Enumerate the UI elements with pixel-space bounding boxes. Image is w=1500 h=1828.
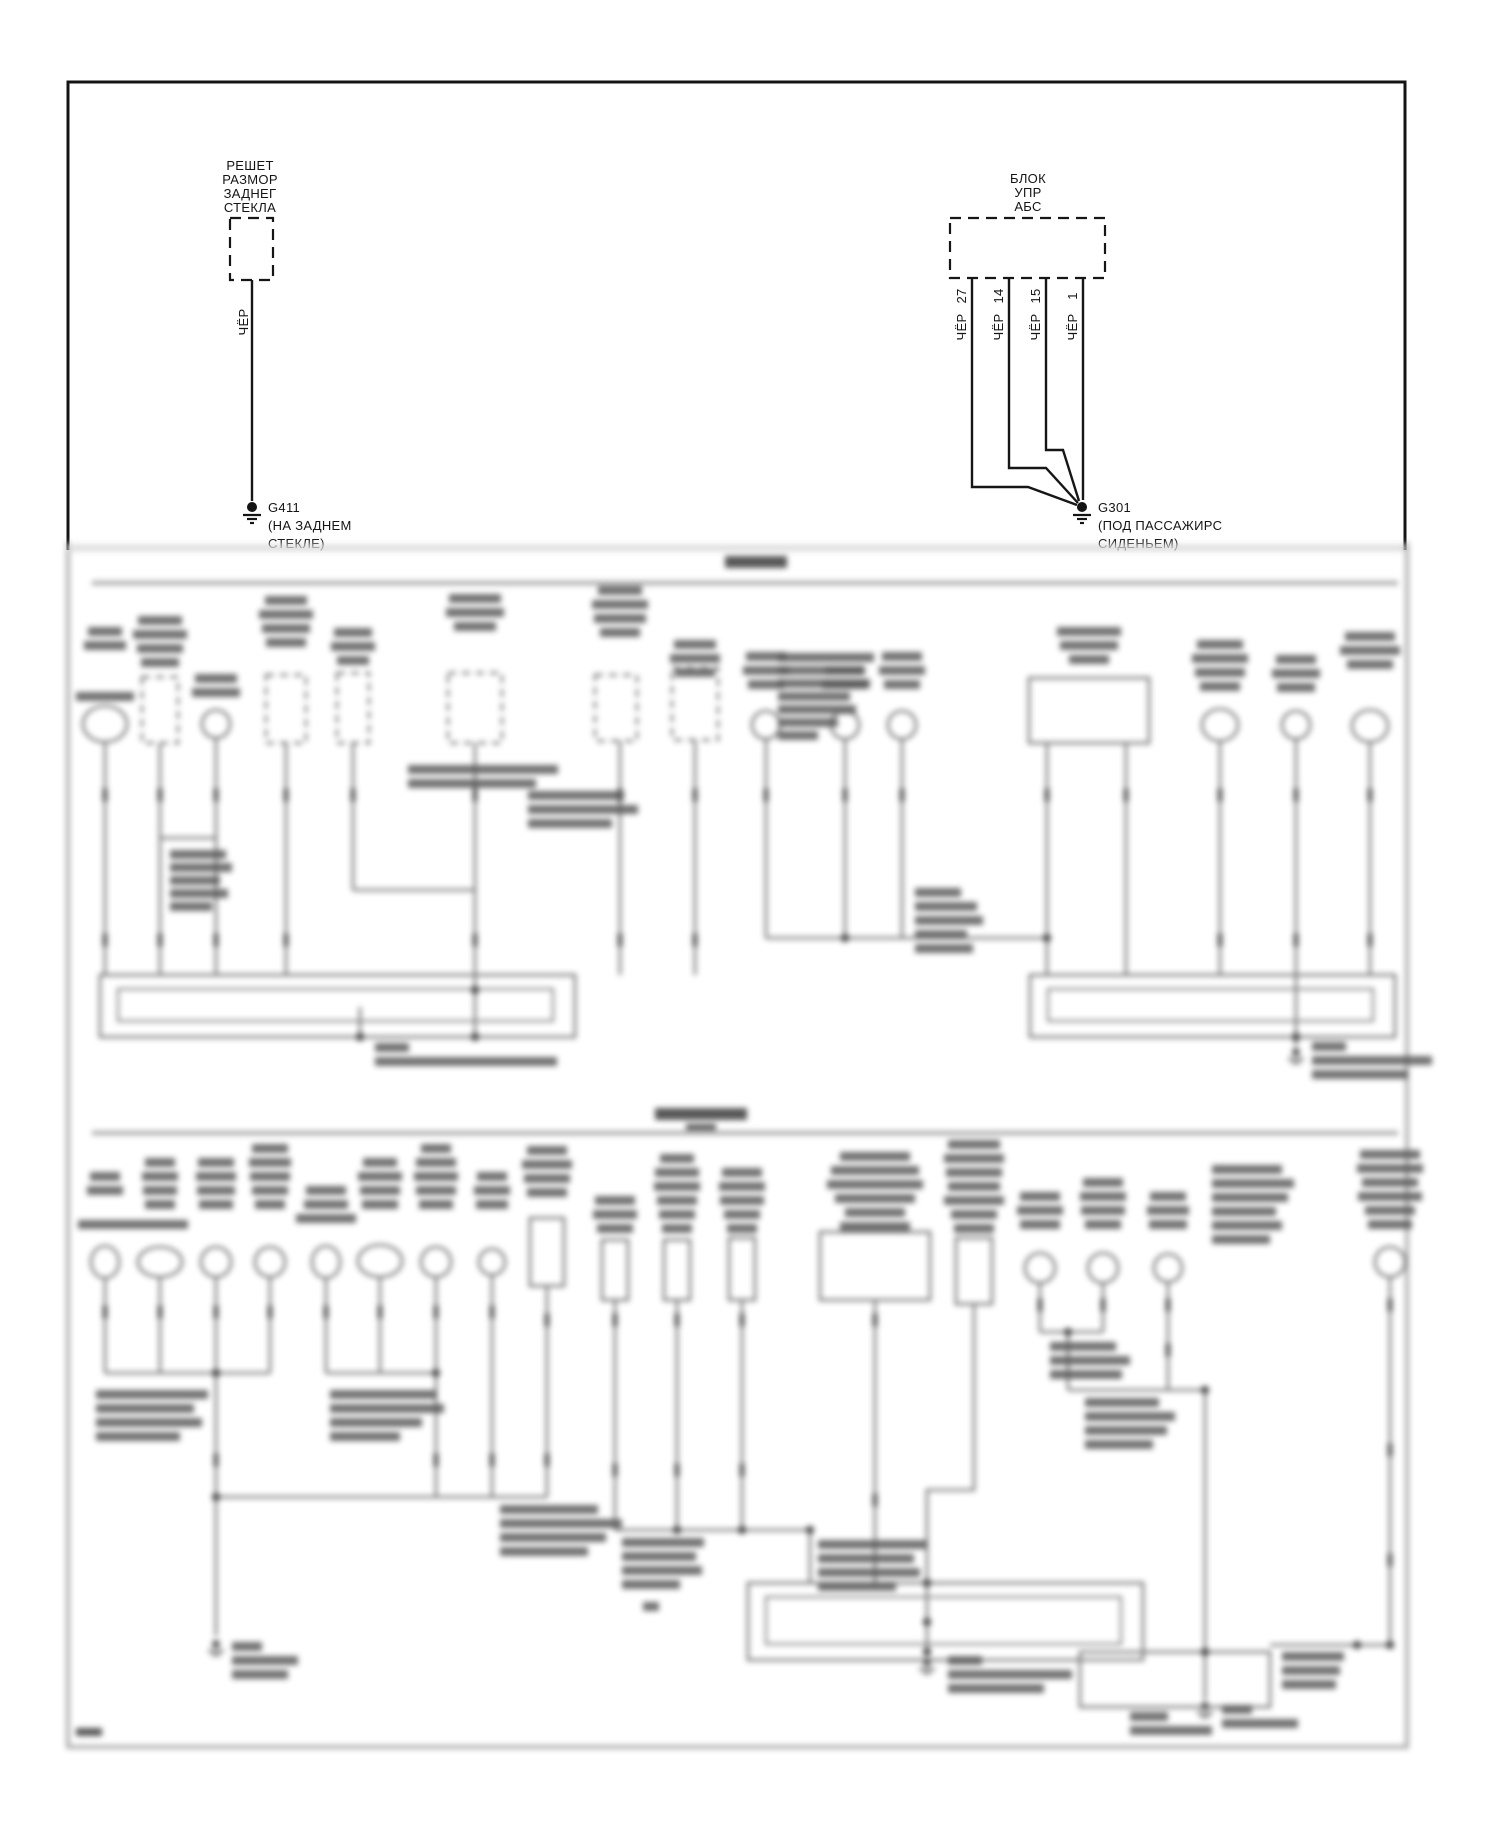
blurred-inline-connector (1166, 1299, 1171, 1312)
blurred-label-row (330, 1390, 436, 1399)
blurred-component-label (1081, 1206, 1125, 1215)
blurred-label-row (818, 1554, 914, 1563)
blurred-component-label (331, 642, 375, 651)
blurred-component-label (363, 1158, 397, 1167)
blurred-connector-box (337, 673, 369, 743)
blurred-component-label (1347, 660, 1393, 669)
blurred-label-row (96, 1418, 202, 1427)
blurred-junction-dot (471, 986, 479, 994)
blurred-component-circle (421, 1247, 451, 1277)
blurred-label-row (232, 1656, 298, 1665)
blurred-inline-connector (103, 789, 108, 802)
blurred-label-row (818, 1540, 926, 1549)
blurred-label-row (1130, 1726, 1212, 1735)
blurred-inline-connector (618, 934, 623, 947)
blurred-component-label (1020, 1192, 1060, 1201)
blurred-ground-bus (1030, 975, 1395, 1037)
blurred-ground-bus (748, 1583, 1143, 1660)
blurred-label-row (622, 1566, 702, 1575)
blurred-component-label (951, 1210, 997, 1219)
blurred-inline-connector (1218, 934, 1223, 947)
blurred-label-row (1130, 1712, 1168, 1721)
blurred-inline-connector (613, 1464, 618, 1477)
blurred-label-row (1222, 1719, 1298, 1728)
blurred-inline-connector (351, 789, 356, 802)
blurred-component-circle (201, 1247, 231, 1277)
blurred-component-label (266, 638, 306, 647)
blurred-inline-connector (1388, 1554, 1393, 1567)
blurred-component-label (419, 1200, 453, 1209)
blurred-inline-connector (693, 934, 698, 947)
blurred-component-label (196, 1172, 236, 1181)
blurred-inline-connector (1101, 1299, 1106, 1312)
blurred-component-box (664, 1240, 690, 1300)
blurred-inline-connector (843, 789, 848, 802)
blurred-label-row (778, 653, 874, 662)
blurred-component-box (956, 1238, 992, 1304)
blurred-component-label (255, 1200, 285, 1209)
blurred-ground-symbol (212, 1640, 220, 1648)
blurred-component-label (1060, 641, 1118, 650)
blurred-component-label (334, 628, 372, 637)
blurred-component-label (1276, 655, 1316, 664)
blurred-section-title (725, 556, 787, 568)
blurred-component-label (195, 674, 237, 683)
blurred-component-label (822, 680, 868, 689)
blurred-component-label (446, 608, 504, 617)
blurred-component-label (944, 1196, 1004, 1205)
blurred-junction-dot (1043, 934, 1051, 942)
blurred-component-label (421, 1144, 451, 1153)
blurred-component-label (1080, 1192, 1126, 1201)
blurred-inline-connector (1294, 789, 1299, 802)
blurred-component-oval (1352, 710, 1388, 742)
blurred-component-label (1147, 1206, 1189, 1215)
blurred-component-label (670, 654, 720, 663)
blurred-component-label (592, 600, 648, 609)
blurred-component-label (748, 680, 784, 689)
blurred-component-label (954, 1224, 994, 1233)
blurred-component-label (87, 1186, 123, 1195)
wiring-diagram-page: РЕШЕТ РАЗМОР ЗАДНЕГ СТЕКЛА ЧЁР G411 (НА … (0, 0, 1500, 1828)
blurred-label-row (232, 1642, 262, 1651)
blurred-inline-connector (675, 1314, 680, 1327)
blurred-label-row (915, 888, 961, 897)
blurred-label-row (375, 1043, 409, 1052)
blurred-component-label (722, 1168, 762, 1177)
blurred-label-row (1212, 1235, 1270, 1244)
blurred-component-label (840, 1222, 910, 1231)
blurred-label-row (1050, 1370, 1122, 1379)
blurred-component-label (78, 1220, 188, 1229)
blurred-label-row (1212, 1207, 1276, 1216)
blurred-component-oval (312, 1246, 340, 1278)
blurred-inline-connector (1388, 1444, 1393, 1457)
blurred-label-row (915, 930, 967, 939)
blurred-component-circle (1025, 1253, 1055, 1283)
blurred-inline-connector (214, 934, 219, 947)
blurred-inline-connector (378, 1306, 383, 1319)
blurred-component-label (835, 1194, 915, 1203)
blurred-label-row (1312, 1056, 1432, 1065)
blurred-label-row (1212, 1179, 1294, 1188)
blurred-component-oval (91, 1246, 119, 1278)
blurred-label-row (1282, 1680, 1336, 1689)
blurred-label-row (1312, 1070, 1408, 1079)
blurred-label-row (1222, 1705, 1252, 1714)
blurred-ground-symbol (1201, 1702, 1209, 1710)
blurred-inline-connector (434, 1306, 439, 1319)
blurred-component-label (524, 1174, 570, 1183)
blurred-junction-dot (1386, 1641, 1394, 1649)
blurred-component-label (600, 628, 640, 637)
blurred-component-label (454, 622, 496, 631)
blurred-ground-bus (100, 975, 575, 1037)
blurred-component-label (1360, 1150, 1420, 1159)
blurred-junction-dot (923, 1618, 931, 1626)
blurred-inline-connector (1294, 934, 1299, 947)
blurred-label-row (778, 718, 838, 727)
blurred-component-label (198, 1158, 234, 1167)
blurred-label-row (778, 731, 818, 740)
blurred-label-row (622, 1538, 704, 1547)
blurred-component-label (597, 1224, 633, 1233)
blurred-component-label (879, 666, 925, 675)
blurred-component-label (259, 610, 313, 619)
blurred-inline-connector (158, 934, 163, 947)
blurred-component-label (474, 1186, 510, 1195)
blurred-component-label (675, 668, 715, 677)
blurred-component-label (416, 1186, 456, 1195)
blurred-label-row (915, 902, 977, 911)
blurred-inline-connector (545, 1314, 550, 1327)
blurred-component-label (594, 614, 646, 623)
blurred-component-label (252, 1186, 288, 1195)
blurred-component-label (306, 1186, 346, 1195)
blurred-label-row (330, 1432, 400, 1441)
blurred-component-circle (752, 711, 780, 739)
blurred-label-row (1085, 1440, 1153, 1449)
blurred-label-row (170, 876, 220, 885)
blurred-inline-connector (490, 1306, 495, 1319)
blurred-junction-dot (471, 1033, 479, 1041)
blurred-junction-dot (212, 1369, 220, 1377)
blurred-section-title (76, 1728, 102, 1736)
blurred-component-label (477, 1172, 507, 1181)
blurred-component-label (882, 652, 922, 661)
blurred-component-label (449, 594, 501, 603)
blurred-component-label (655, 1168, 699, 1177)
blurred-inline-connector (434, 1454, 439, 1467)
blurred-inline-connector (490, 1454, 495, 1467)
blurred-component-label (249, 1158, 291, 1167)
blurred-inline-connector (158, 789, 163, 802)
blurred-component-label (360, 1186, 400, 1195)
blurred-component-label (831, 1166, 919, 1175)
blurred-label-row (1212, 1221, 1282, 1230)
blurred-section-title (686, 1124, 716, 1130)
blurred-component-box (820, 1232, 930, 1300)
blurred-inline-connector (675, 1464, 680, 1477)
blurred-component-circle (255, 1247, 285, 1277)
blurred-junction-dot (1201, 1648, 1209, 1656)
blurred-inline-connector (900, 789, 905, 802)
blurred-component-label (845, 1208, 905, 1217)
blurred-label-row (528, 819, 612, 828)
blurred-junction-dot (806, 1526, 814, 1534)
blurred-component-label (1020, 1220, 1060, 1229)
blurred-component-label (674, 640, 716, 649)
blurred-label-row (96, 1390, 208, 1399)
blurred-inline-connector (103, 1306, 108, 1319)
blurred-junction-dot (356, 1033, 364, 1041)
blurred-label-row (170, 889, 228, 898)
blurred-component-label (88, 627, 122, 636)
blurred-component-box (530, 1218, 564, 1286)
blurred-component-label (827, 1180, 923, 1189)
blurred-component-label (414, 1172, 458, 1181)
blurred-inline-connector (1166, 1344, 1171, 1357)
blurred-component-label (1017, 1206, 1063, 1215)
blurred-component-label (1277, 683, 1315, 692)
blurred-component-label (304, 1200, 348, 1209)
blurred-component-circle (888, 711, 916, 739)
blurred-component-label (90, 1172, 120, 1181)
blurred-label-row (1085, 1398, 1159, 1407)
blurred-label-row (948, 1670, 1072, 1679)
blurred-component-label (142, 1172, 178, 1181)
blurred-component-oval (138, 1247, 182, 1277)
blurred-component-circle (1154, 1254, 1182, 1282)
blurred-component-label (595, 1196, 635, 1205)
blurred-inline-connector (873, 1314, 878, 1327)
blurred-label-row (1312, 1042, 1346, 1051)
blurred-component-label (1195, 668, 1245, 677)
blurred-component-label (252, 1144, 288, 1153)
blurred-junction-dot (923, 1648, 931, 1656)
blurred-component-label (1357, 1164, 1423, 1173)
blurred-label-row (818, 1568, 920, 1577)
blurred-connector-box (266, 675, 306, 743)
blurred-label-row (1212, 1193, 1288, 1202)
blurred-component-label (719, 1182, 765, 1191)
blurred-junction-dot (1292, 1033, 1300, 1041)
blurred-component-label (944, 1154, 1004, 1163)
blurred-component-label (337, 656, 369, 665)
blurred-label-row (1050, 1342, 1116, 1351)
blurred-inline-connector (1368, 934, 1373, 947)
blurred-inline-connector (1038, 1299, 1043, 1312)
blurred-component-label (1368, 1220, 1412, 1229)
blurred-component-label (84, 641, 126, 650)
blurred-component-label (1150, 1192, 1186, 1201)
blurred-label-row (528, 791, 624, 800)
blurred-label-row (1282, 1666, 1340, 1675)
blurred-ground-symbol (1292, 1048, 1300, 1056)
blurred-component-label (948, 1182, 1000, 1191)
blurred-component-circle (479, 1249, 505, 1275)
blurred-component-label (416, 1158, 456, 1167)
blurred-label-row (622, 1552, 696, 1561)
blurred-inline-connector (740, 1464, 745, 1477)
blurred-inline-connector (214, 789, 219, 802)
blurred-component-label (1358, 1192, 1422, 1201)
blurred-connector-box (595, 675, 637, 741)
blurred-component-circle (1088, 1253, 1118, 1283)
blurred-inline-connector (1388, 1299, 1393, 1312)
blurred-component-label (593, 1210, 637, 1219)
blurred-component-label (197, 1186, 235, 1195)
blurred-component-box (729, 1238, 755, 1300)
blurred-component-circle (1375, 1247, 1405, 1277)
blurred-component-label (522, 1160, 572, 1169)
blurred-ground-bus-inner (766, 1597, 1121, 1644)
blurred-component-label (1362, 1178, 1418, 1187)
blurred-component-label (296, 1214, 356, 1223)
blurred-inline-connector (1368, 789, 1373, 802)
blurred-component-label (358, 1172, 402, 1181)
blurred-junction-dot (1064, 1328, 1072, 1336)
blurred-component-label (143, 1186, 177, 1195)
blurred-inline-connector (764, 789, 769, 802)
blurred-component-box (602, 1240, 628, 1300)
blurred-component-label (527, 1188, 567, 1197)
blurred-inline-connector (1124, 789, 1129, 802)
blurred-label-row (778, 705, 856, 714)
blurred-component-label (884, 680, 920, 689)
blurred-inline-connector (214, 1454, 219, 1467)
blurred-inline-connector (873, 1494, 878, 1507)
blurred-component-label (662, 1224, 692, 1233)
blurred-component-label (133, 630, 187, 639)
blurred-label-row (1212, 1165, 1282, 1174)
blurred-component-label (192, 688, 240, 697)
blurred-component-box (1029, 678, 1149, 743)
blurred-label-row (330, 1418, 422, 1427)
blurred-component-label (746, 652, 786, 661)
blurred-component-circle (202, 710, 230, 738)
blurred-section-title (655, 1108, 747, 1120)
blurred-component-circle (1282, 711, 1310, 739)
blurred-label-row (1282, 1652, 1344, 1661)
blurred-label-row (1085, 1426, 1167, 1435)
blurred-component-label (1197, 640, 1243, 649)
blurred-component-label (262, 624, 310, 633)
blurred-component-label (724, 1210, 760, 1219)
blurred-junction-dot (738, 1526, 746, 1534)
blurred-label-row (1050, 1356, 1130, 1365)
blurred-label-row (643, 1602, 659, 1611)
blurred-component-label (141, 658, 179, 667)
blurred-junction-dot (1201, 1386, 1209, 1394)
blurred-component-label (265, 596, 307, 605)
blurred-inline-connector (1045, 789, 1050, 802)
blurred-label-row (170, 863, 232, 872)
blurred-component-label (1085, 1220, 1121, 1229)
blurred-component-label (1192, 654, 1248, 663)
blurred-inline-connector (268, 1306, 273, 1319)
blurred-label-row (500, 1505, 598, 1514)
blurred-component-label (476, 1200, 508, 1209)
blurred-junction-dot (841, 934, 849, 942)
blurred-component-label (199, 1200, 233, 1209)
blurred-inline-connector (613, 1314, 618, 1327)
blurred-component-label (1200, 682, 1240, 691)
blurred-component-label (1057, 627, 1121, 636)
blurred-inline-connector (214, 1306, 219, 1319)
blurred-inline-connector (545, 1454, 550, 1467)
blurred-label-row (915, 944, 973, 953)
blurred-component-label (76, 692, 134, 701)
blurred-label-row (170, 850, 226, 859)
blurred-component-label (659, 1210, 695, 1219)
blurred-component-label (720, 1196, 764, 1205)
blurred-label-row (375, 1057, 557, 1066)
blurred-component-label (743, 666, 789, 675)
blurred-connector-box (448, 673, 502, 743)
blurred-label-row (408, 779, 536, 788)
blurred-label-row (500, 1519, 622, 1528)
blurred-connector-box (142, 677, 178, 743)
blurred-junction-dot (212, 1493, 220, 1501)
blurred-component-label (1340, 646, 1400, 655)
blurred-inline-connector (284, 789, 289, 802)
blurred-wire (927, 1304, 974, 1652)
blurred-component-label (527, 1146, 567, 1155)
blurred-inline-connector (158, 1306, 163, 1319)
blurred-component-label (138, 616, 182, 625)
blurred-label-row (528, 805, 638, 814)
blurred-inline-connector (284, 934, 289, 947)
blurred-component-label (1345, 632, 1395, 641)
blurred-label-row (170, 902, 212, 911)
blurred-component-label (654, 1182, 700, 1191)
blurred-component-label (598, 586, 642, 595)
blurred-label-row (948, 1684, 1044, 1693)
blurred-label-row (1085, 1412, 1175, 1421)
blurred-component-oval (83, 706, 127, 742)
blurred-component-label (1272, 669, 1320, 678)
blurred-connector-box (672, 668, 718, 740)
blurred-label-row (778, 692, 850, 701)
blurred-label-row (948, 1656, 982, 1665)
blurred-component-label (948, 1140, 1000, 1149)
blurred-label-row (500, 1533, 606, 1542)
blurred-inline-connector (473, 934, 478, 947)
blurred-label-row (232, 1670, 288, 1679)
blurred-label-row (330, 1404, 444, 1413)
blurred-component-label (1069, 655, 1109, 664)
blurred-component-label (660, 1154, 694, 1163)
blurred-component-oval (1202, 709, 1238, 741)
blurred-component-label (1149, 1220, 1187, 1229)
blurred-component-label (145, 1200, 175, 1209)
blurred-component-label (825, 666, 865, 675)
blurred-inline-connector (473, 789, 478, 802)
blurred-component-label (946, 1168, 1002, 1177)
blurred-ground-bus-inner (1048, 989, 1373, 1021)
blurred-component-label (137, 644, 183, 653)
blurred-diagram-layer (0, 0, 1500, 1828)
blurred-component-label (145, 1158, 175, 1167)
blurred-label-row (915, 916, 983, 925)
blurred-inline-connector (103, 934, 108, 947)
blurred-component-oval (358, 1245, 402, 1277)
blurred-label-row (96, 1432, 180, 1441)
blurred-label-row (96, 1404, 194, 1413)
blurred-component-label (840, 1152, 910, 1161)
blurred-label-row (622, 1580, 680, 1589)
